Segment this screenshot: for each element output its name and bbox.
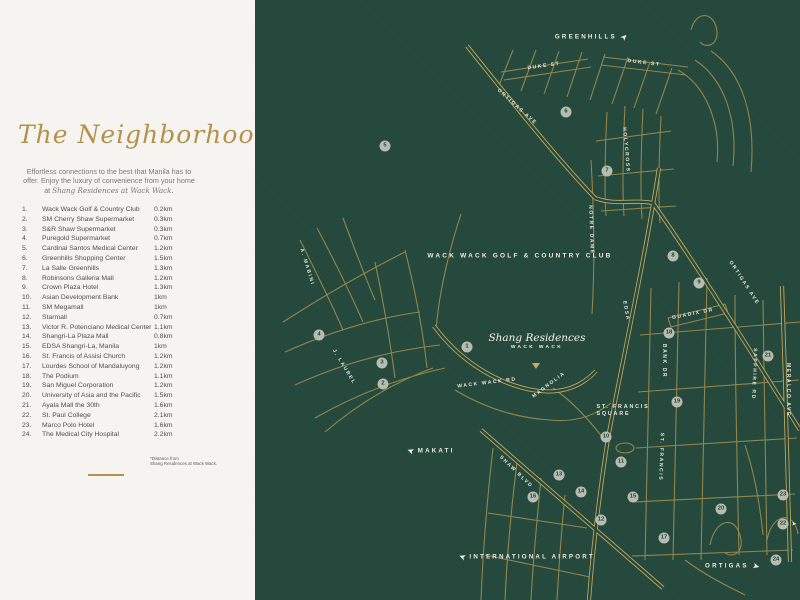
place-number: 5. [22, 245, 42, 252]
place-name: S&R Shaw Supermarket [42, 226, 154, 233]
place-distance: 1.1km [154, 324, 216, 331]
place-distance: 1.3km [154, 284, 216, 291]
place-distance: 1.2km [154, 363, 216, 370]
map-panel: WACK WACK GOLF & COUNTRY CLUB Shang Resi… [255, 0, 800, 600]
map-marker-21: 21 [763, 351, 774, 362]
intro-italic: Shang Residences at Wack Wack. [52, 186, 174, 195]
map-marker-2: 2 [378, 379, 389, 390]
place-distance: 0.7km [154, 314, 216, 321]
map-marker-24: 24 [771, 555, 782, 566]
direction-arrow-icon: ➤ [406, 446, 415, 457]
place-distance: 1.2km [154, 382, 216, 389]
place-row: 18. The Podium 1.1km [22, 373, 216, 383]
place-row: 13. Victor R. Potenciano Medical Center … [22, 324, 216, 334]
place-number: 23. [22, 422, 42, 429]
place-distance: 1km [154, 343, 216, 350]
place-number: 15. [22, 343, 42, 350]
place-number: 8. [22, 275, 42, 282]
residence-script-name: Shang Residences [488, 332, 585, 344]
place-name: Cardinal Santos Medical Center [42, 245, 154, 252]
place-row: 4. Puregold Supermarket 0.7km [22, 235, 216, 245]
footnote-line2: Shang Residences at Wack Wack. [150, 461, 220, 466]
direction-text: GREENHILLS [555, 34, 617, 41]
major-road-outline [434, 46, 800, 600]
map-marker-18: 18 [664, 328, 675, 339]
place-distance: 1.2km [154, 245, 216, 252]
place-distance: 0.2km [154, 206, 216, 213]
place-number: 12. [22, 314, 42, 321]
place-number: 11. [22, 304, 42, 311]
place-number: 3. [22, 226, 42, 233]
map-marker-6: 6 [561, 107, 572, 118]
page-title: The Neighborhood [18, 120, 200, 149]
place-name: Greenhills Shopping Center [42, 255, 154, 262]
place-number: 9. [22, 284, 42, 291]
place-row: 11. SM Megamall 1km [22, 304, 216, 314]
place-distance: 1.6km [154, 422, 216, 429]
place-row: 7. La Salle Greenhills 1.3km [22, 265, 216, 275]
direction-text: ORTIGAS [705, 563, 749, 570]
map-marker-3: 3 [377, 358, 388, 369]
place-distance: 0.8km [154, 333, 216, 340]
place-name: Robinsons Galleria Mall [42, 275, 154, 282]
place-row: 3. S&R Shaw Supermarket 0.3km [22, 226, 216, 236]
place-name: The Podium [42, 373, 154, 380]
direction-label-greenhills: GREENHILLS➤ [555, 33, 627, 42]
intro-paragraph: Effortless connections to the best that … [21, 167, 197, 195]
map-marker-11: 11 [616, 457, 627, 468]
place-number: 20. [22, 392, 42, 399]
place-number: 17. [22, 363, 42, 370]
place-name: Wack Wack Golf & Country Club [42, 206, 154, 213]
place-name: Asian Development Bank [42, 294, 154, 301]
place-row: 12. Starmall 0.7km [22, 314, 216, 324]
place-number: 6. [22, 255, 42, 262]
place-name: SM Cherry Shaw Supermarket [42, 216, 154, 223]
map-marker-19: 19 [672, 397, 683, 408]
area-label-line2: SQUARE [596, 411, 649, 418]
direction-label-makati: ➤MAKATI [407, 447, 454, 456]
residence-label: Shang Residences WACK WACK [488, 332, 585, 350]
place-name: SM Megamall [42, 304, 154, 311]
place-row: 24. The Medical City Hospital 2.2km [22, 431, 216, 441]
place-distance: 1km [154, 294, 216, 301]
map-marker-13: 13 [554, 470, 565, 481]
place-distance: 1.1km [154, 373, 216, 380]
place-row: 5. Cardinal Santos Medical Center 1.2km [22, 245, 216, 255]
map-marker-7: 7 [602, 166, 613, 177]
map-marker-9: 9 [694, 278, 705, 289]
map-marker-17: 17 [659, 533, 670, 544]
major-road-fill [434, 46, 800, 600]
place-row: 14. Shangri-La Plaza Mall 0.8km [22, 333, 216, 343]
pond-outline [616, 443, 634, 453]
place-number: 18. [22, 373, 42, 380]
place-row: 20. University of Asia and the Pacific 1… [22, 392, 216, 402]
golf-club-label: WACK WACK GOLF & COUNTRY CLUB [427, 253, 612, 260]
info-panel-content: The Neighborhood Effortless connections … [18, 0, 200, 600]
place-name: San Miguel Corporation [42, 382, 154, 389]
direction-label-ortigas: ORTIGAS➤ [705, 562, 759, 571]
map-marker-4: 4 [314, 330, 325, 341]
place-name: St. Paul College [42, 412, 154, 419]
place-name: EDSA Shangri-La, Manila [42, 343, 154, 350]
places-list: 1. Wack Wack Golf & Country Club 0.2km 2… [22, 206, 216, 441]
street-label: BANK DR [661, 344, 667, 378]
place-row: 6. Greenhills Shopping Center 1.5km [22, 255, 216, 265]
place-row: 22. St. Paul College 2.1km [22, 412, 216, 422]
place-number: 4. [22, 235, 42, 242]
map-marker-8: 8 [668, 251, 679, 262]
place-number: 16. [22, 353, 42, 360]
place-number: 13. [22, 324, 42, 331]
place-number: 14. [22, 333, 42, 340]
map-marker-23: 23 [778, 490, 789, 501]
map-marker-12: 12 [596, 515, 607, 526]
place-distance: 1.2km [154, 275, 216, 282]
place-name: University of Asia and the Pacific [42, 392, 154, 399]
place-name: Ayala Mall the 30th [42, 402, 154, 409]
place-number: 21. [22, 402, 42, 409]
gold-divider [88, 474, 124, 476]
place-row: 21. Ayala Mall the 30th 1.6km [22, 402, 216, 412]
place-row: 23. Marco Polo Hotel 1.6km [22, 422, 216, 432]
place-distance: 1.5km [154, 392, 216, 399]
place-row: 17. Lourdes School of Mandaluyong 1.2km [22, 363, 216, 373]
place-number: 22. [22, 412, 42, 419]
place-distance: 1.6km [154, 402, 216, 409]
direction-text: MAKATI [418, 448, 455, 455]
map-marker-10: 10 [601, 432, 612, 443]
distance-footnote: *Distance from Shang Residences at Wack … [150, 456, 220, 467]
place-row: 16. St. Francis of Assisi Church 1.2km [22, 353, 216, 363]
place-number: 19. [22, 382, 42, 389]
map-marker-20: 20 [716, 504, 727, 515]
info-panel: The Neighborhood Effortless connections … [0, 0, 255, 600]
map-marker-15: 15 [628, 492, 639, 503]
map-marker-1: 1 [462, 342, 473, 353]
place-number: 2. [22, 216, 42, 223]
place-row: 1. Wack Wack Golf & Country Club 0.2km [22, 206, 216, 216]
place-distance: 1km [154, 304, 216, 311]
place-name: Puregold Supermarket [42, 235, 154, 242]
place-name: Starmall [42, 314, 154, 321]
place-row: 2. SM Cherry Shaw Supermarket 0.3km [22, 216, 216, 226]
place-distance: 0.3km [154, 226, 216, 233]
map-marker-14: 14 [576, 487, 587, 498]
place-distance: 1.5km [154, 255, 216, 262]
place-row: 9. Crown Plaza Hotel 1.3km [22, 284, 216, 294]
place-distance: 1.2km [154, 353, 216, 360]
place-distance: 0.7km [154, 235, 216, 242]
place-name: Shangri-La Plaza Mall [42, 333, 154, 340]
offmap-arrow-icon: ➤ [791, 521, 796, 528]
map-marker-5: 5 [380, 141, 391, 152]
place-name: St. Francis of Assisi Church [42, 353, 154, 360]
street-label: MERALCO AVE [785, 363, 791, 417]
st-francis-square-label: ST. FRANCIS SQUARE [596, 404, 649, 418]
location-pin-icon [532, 363, 540, 369]
place-name: Marco Polo Hotel [42, 422, 154, 429]
direction-text: INTERNATIONAL AIRPORT [469, 554, 595, 561]
place-name: La Salle Greenhills [42, 265, 154, 272]
place-row: 10. Asian Development Bank 1km [22, 294, 216, 304]
place-name: The Medical City Hospital [42, 431, 154, 438]
place-row: 8. Robinsons Galleria Mall 1.2km [22, 275, 216, 285]
place-name: Lourdes School of Mandaluyong [42, 363, 154, 370]
map-marker-16: 16 [528, 492, 539, 503]
residence-caps-name: WACK WACK [488, 345, 585, 350]
map-marker-22: 22 [778, 519, 789, 530]
road-path-north-grid [436, 50, 752, 330]
place-row: 15. EDSA Shangri-La, Manila 1km [22, 343, 216, 353]
place-number: 10. [22, 294, 42, 301]
direction-arrow-icon: ➤ [752, 561, 760, 571]
place-number: 1. [22, 206, 42, 213]
place-name: Victor R. Potenciano Medical Center [42, 324, 154, 331]
area-label-line1: ST. FRANCIS [596, 404, 649, 411]
place-distance: 2.1km [154, 412, 216, 419]
direction-label-international-airport: ➤INTERNATIONAL AIRPORT [459, 553, 595, 562]
road-path-west-grid [283, 218, 445, 432]
place-distance: 2.2km [154, 431, 216, 438]
direction-arrow-icon: ➤ [458, 552, 467, 563]
place-row: 19. San Miguel Corporation 1.2km [22, 382, 216, 392]
place-number: 7. [22, 265, 42, 272]
place-name: Crown Plaza Hotel [42, 284, 154, 291]
place-distance: 0.3km [154, 216, 216, 223]
place-distance: 1.3km [154, 265, 216, 272]
place-number: 24. [22, 431, 42, 438]
